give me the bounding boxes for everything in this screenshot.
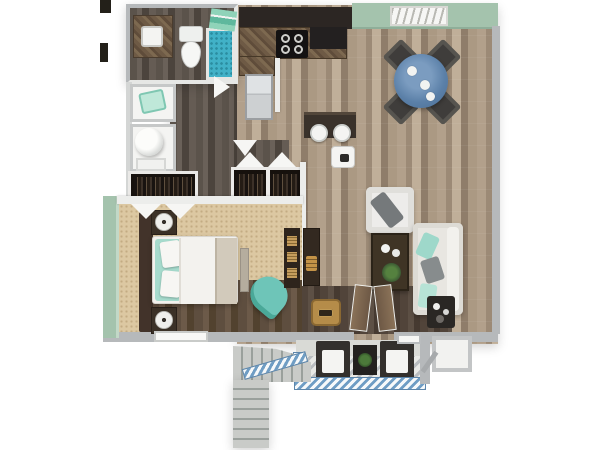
kitchen-counter-left (239, 56, 275, 76)
refrigerator (245, 74, 273, 120)
floor-plan (0, 0, 600, 450)
plant (358, 353, 372, 367)
entry-mat (311, 299, 341, 326)
plant (382, 263, 401, 282)
kitchen-wall (275, 58, 280, 112)
floor-tray (331, 146, 355, 168)
entry-door (397, 334, 421, 344)
range (276, 30, 308, 58)
patio-chair (380, 341, 414, 381)
dining-window (390, 6, 448, 26)
bedroom-top-wall (117, 196, 303, 204)
patio-table (353, 345, 377, 375)
dining-table (394, 54, 448, 108)
kitchen-upper-cabinets (239, 7, 355, 29)
vanity-sink (141, 26, 163, 47)
shower (206, 28, 235, 80)
lamp (155, 213, 173, 231)
dresser (284, 228, 300, 288)
toilet-tank (179, 26, 203, 42)
armchair (366, 187, 414, 233)
coat-closet-clothes (134, 177, 192, 197)
console-basket (306, 256, 317, 271)
washer-unit (136, 158, 166, 171)
crop-artifact (100, 43, 108, 62)
counter-dark-section (310, 27, 347, 49)
side-table (427, 296, 455, 328)
water-heater (135, 128, 163, 156)
coffee-table (371, 233, 409, 291)
bedroom-window (154, 331, 208, 342)
crop-artifact (100, 0, 111, 13)
bar-stool (333, 124, 351, 142)
lamp (155, 311, 173, 329)
bed (152, 236, 238, 304)
balcony-railing (294, 377, 426, 390)
bedroom-accent-wall (103, 196, 119, 338)
right-wall (492, 26, 500, 334)
patio-chair (316, 341, 350, 381)
bench (240, 248, 249, 292)
bar-stool (310, 124, 328, 142)
staircase-lower (233, 380, 269, 448)
towels (209, 8, 238, 31)
